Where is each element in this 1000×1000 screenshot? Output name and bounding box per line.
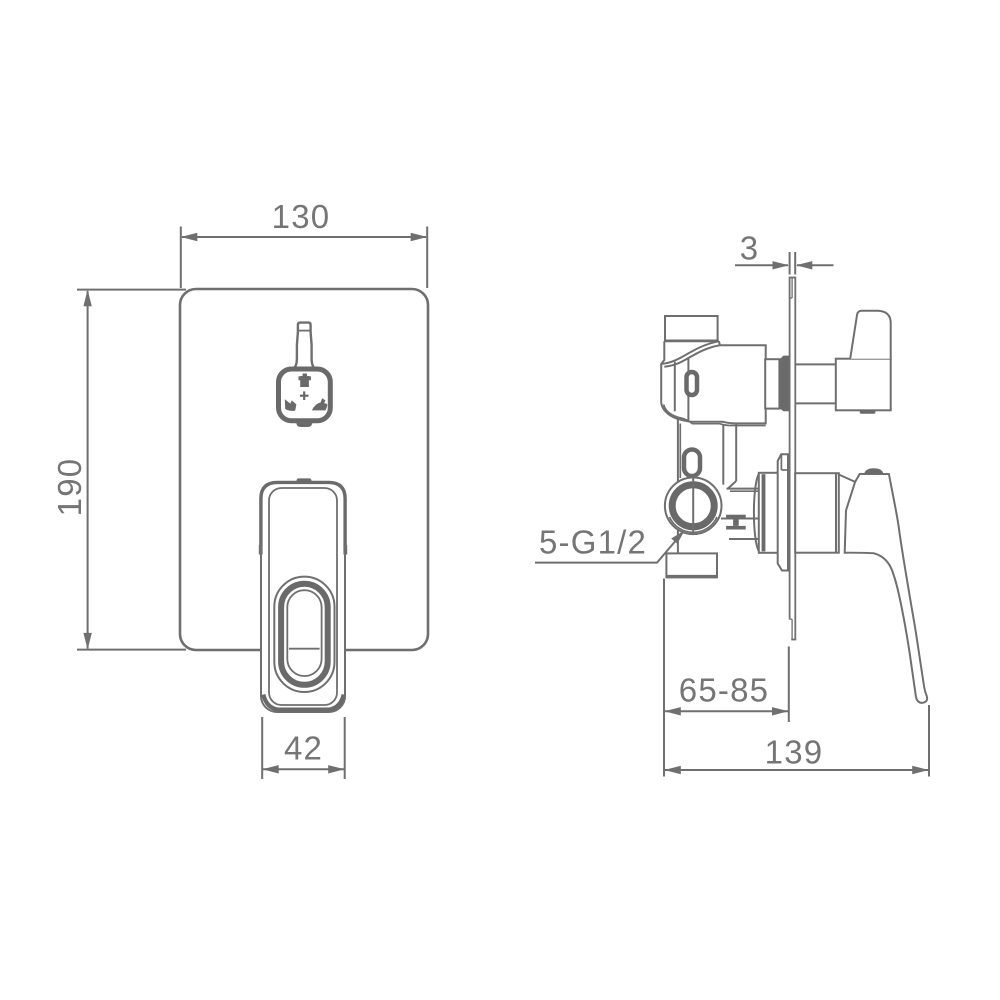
svg-text:65-85: 65-85 bbox=[679, 672, 769, 709]
svg-text:42: 42 bbox=[284, 730, 323, 767]
svg-text:5-G1/2: 5-G1/2 bbox=[539, 524, 647, 561]
svg-text:130: 130 bbox=[272, 198, 331, 235]
svg-text:139: 139 bbox=[765, 734, 824, 771]
svg-text:3: 3 bbox=[740, 230, 760, 267]
svg-text:190: 190 bbox=[51, 458, 88, 517]
